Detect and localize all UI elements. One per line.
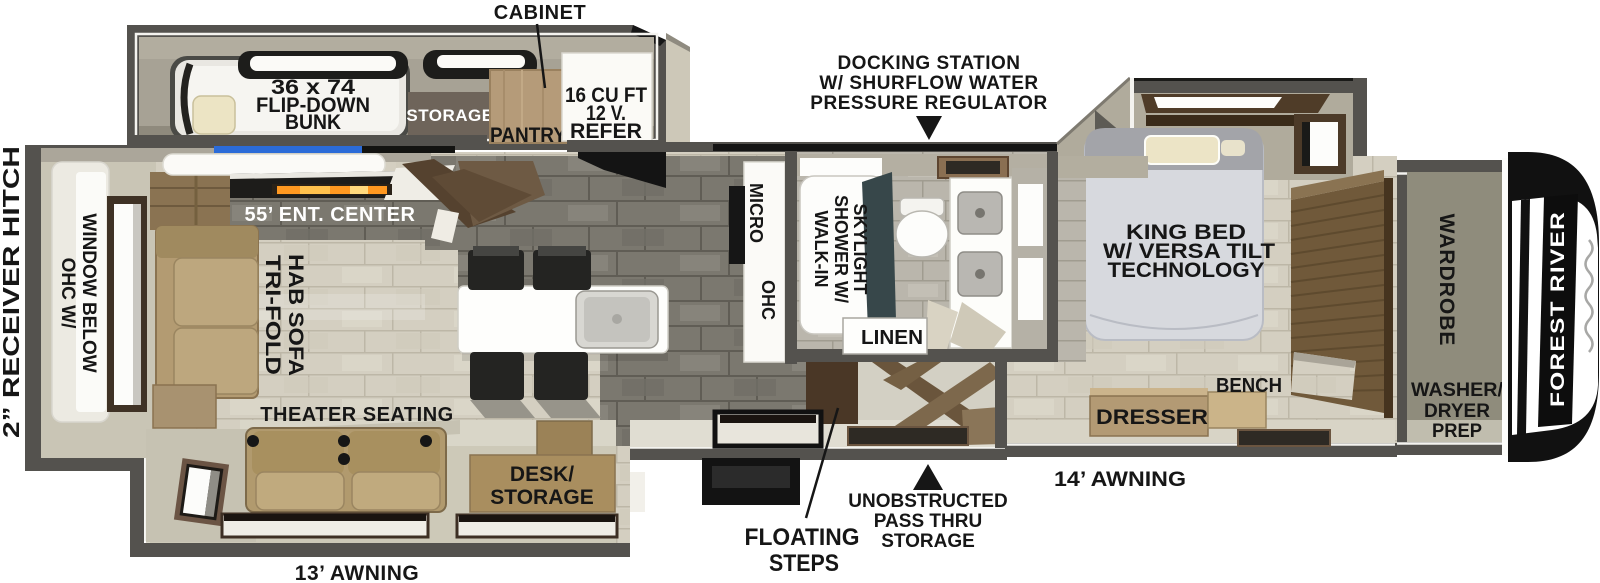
svg-text:STORAGE: STORAGE xyxy=(490,486,593,509)
svg-text:BENCH: BENCH xyxy=(1216,375,1282,397)
svg-text:LINEN: LINEN xyxy=(861,327,923,349)
svg-text:REFER: REFER xyxy=(570,120,642,143)
svg-text:BUNK: BUNK xyxy=(285,111,341,134)
svg-text:FLOATING: FLOATING xyxy=(745,524,860,551)
svg-text:14’ AWNING: 14’ AWNING xyxy=(1054,468,1186,491)
svg-text:PREP: PREP xyxy=(1432,421,1482,442)
svg-text:UNOBSTRUCTED: UNOBSTRUCTED xyxy=(848,491,1007,512)
svg-text:55’ ENT. CENTER: 55’ ENT. CENTER xyxy=(245,204,416,226)
svg-text:TECHNOLOGY: TECHNOLOGY xyxy=(1108,259,1265,282)
svg-text:FOREST RIVER: FOREST RIVER xyxy=(1548,211,1569,407)
svg-text:HAB SOFA: HAB SOFA xyxy=(284,254,307,376)
svg-text:STORAGE: STORAGE xyxy=(881,531,975,552)
svg-text:MICRO: MICRO xyxy=(746,183,766,243)
svg-text:SKYLIGHT: SKYLIGHT xyxy=(850,203,870,294)
svg-text:WARDROBE: WARDROBE xyxy=(1435,214,1458,347)
svg-text:2” RECEIVER HITCH: 2” RECEIVER HITCH xyxy=(0,146,24,438)
svg-text:PANTRY: PANTRY xyxy=(490,124,566,147)
svg-text:PASS THRU: PASS THRU xyxy=(874,511,982,532)
svg-text:STEPS: STEPS xyxy=(769,550,839,577)
svg-text:13’ AWNING: 13’ AWNING xyxy=(295,562,419,583)
svg-text:WINDOW BELOW: WINDOW BELOW xyxy=(78,213,99,372)
svg-text:THEATER SEATING: THEATER SEATING xyxy=(260,404,453,426)
svg-text:PRESSURE REGULATOR: PRESSURE REGULATOR xyxy=(810,93,1047,114)
svg-text:OHC: OHC xyxy=(758,280,778,320)
svg-text:SHOWER W/: SHOWER W/ xyxy=(831,195,851,303)
svg-text:DESK/: DESK/ xyxy=(510,463,574,486)
svg-text:DRYER: DRYER xyxy=(1424,401,1490,422)
svg-text:WASHER/: WASHER/ xyxy=(1411,380,1504,401)
svg-text:DRESSER: DRESSER xyxy=(1096,406,1208,429)
svg-text:STORAGE: STORAGE xyxy=(406,106,493,125)
svg-text:CABINET: CABINET xyxy=(494,2,586,24)
svg-text:W/ SHURFLOW WATER: W/ SHURFLOW WATER xyxy=(819,73,1038,94)
svg-text:DOCKING STATION: DOCKING STATION xyxy=(837,53,1020,74)
svg-text:OHC W/: OHC W/ xyxy=(57,258,78,329)
svg-text:TRI-FOLD: TRI-FOLD xyxy=(261,255,284,375)
svg-text:WALK-IN: WALK-IN xyxy=(811,211,831,288)
